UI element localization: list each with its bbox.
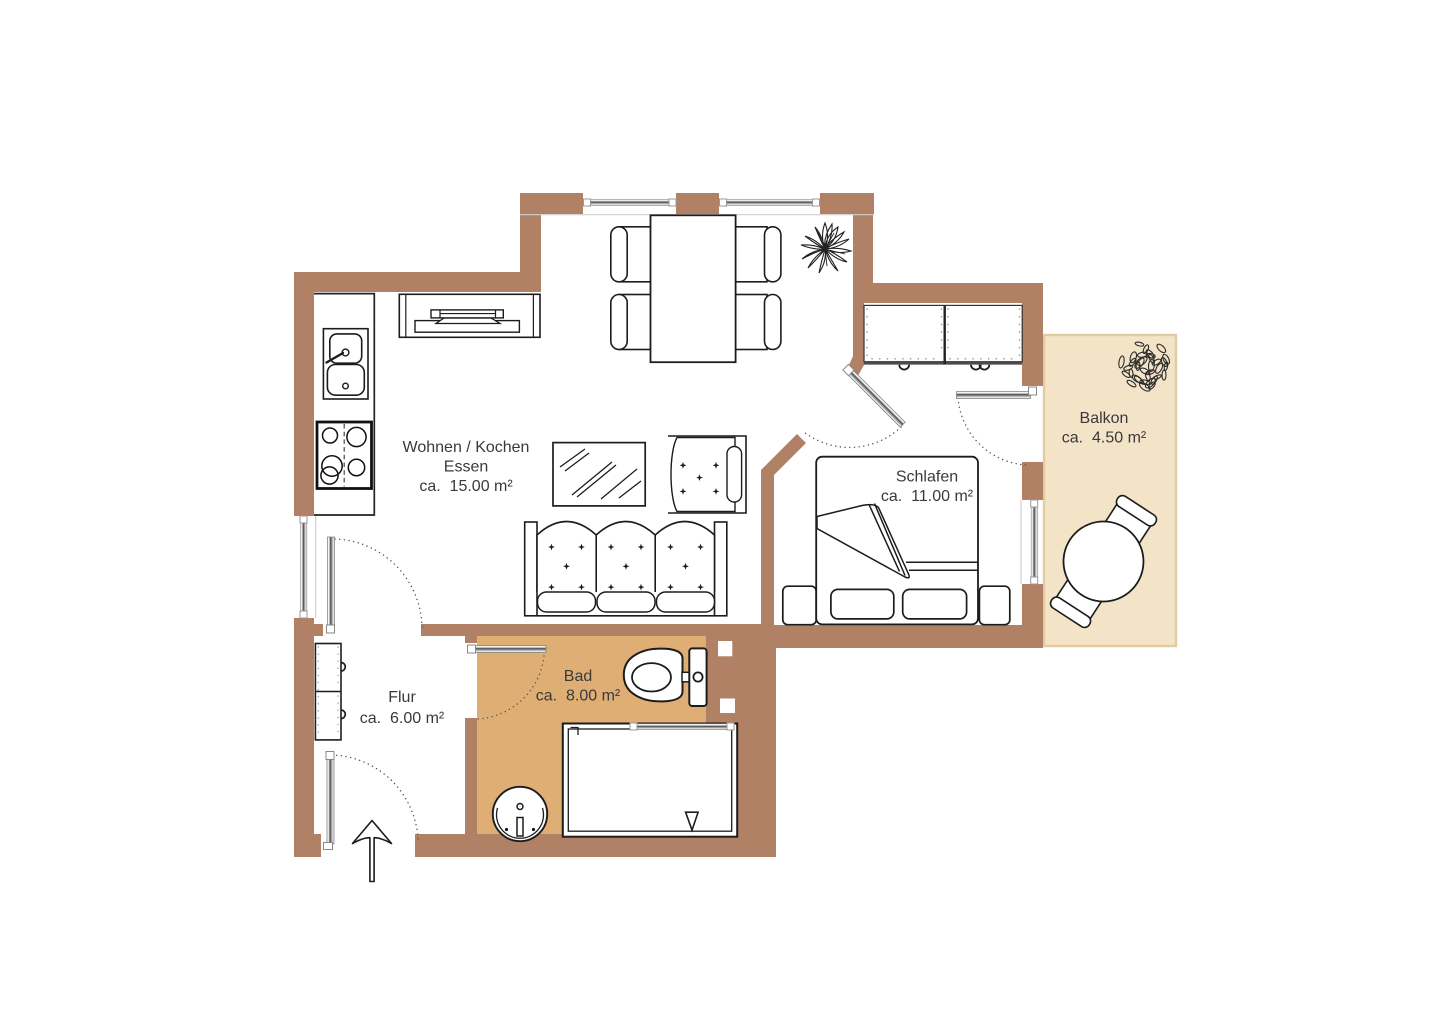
svg-text:Essen: Essen [444,459,488,476]
svg-text:ca. 8.00 m²: ca. 8.00 m² [536,688,621,705]
svg-text:ca. 15.00 m²: ca. 15.00 m² [419,478,513,495]
svg-text:ca. 4.50 m²: ca. 4.50 m² [1062,430,1147,447]
svg-text:Schlafen: Schlafen [896,469,958,486]
svg-text:Balkon: Balkon [1080,410,1129,427]
svg-text:Flur: Flur [388,689,416,706]
svg-text:Wohnen / Kochen: Wohnen / Kochen [403,439,530,456]
svg-text:ca. 6.00 m²: ca. 6.00 m² [360,710,445,727]
svg-text:ca. 11.00 m²: ca. 11.00 m² [881,488,974,505]
svg-text:Bad: Bad [564,668,592,685]
